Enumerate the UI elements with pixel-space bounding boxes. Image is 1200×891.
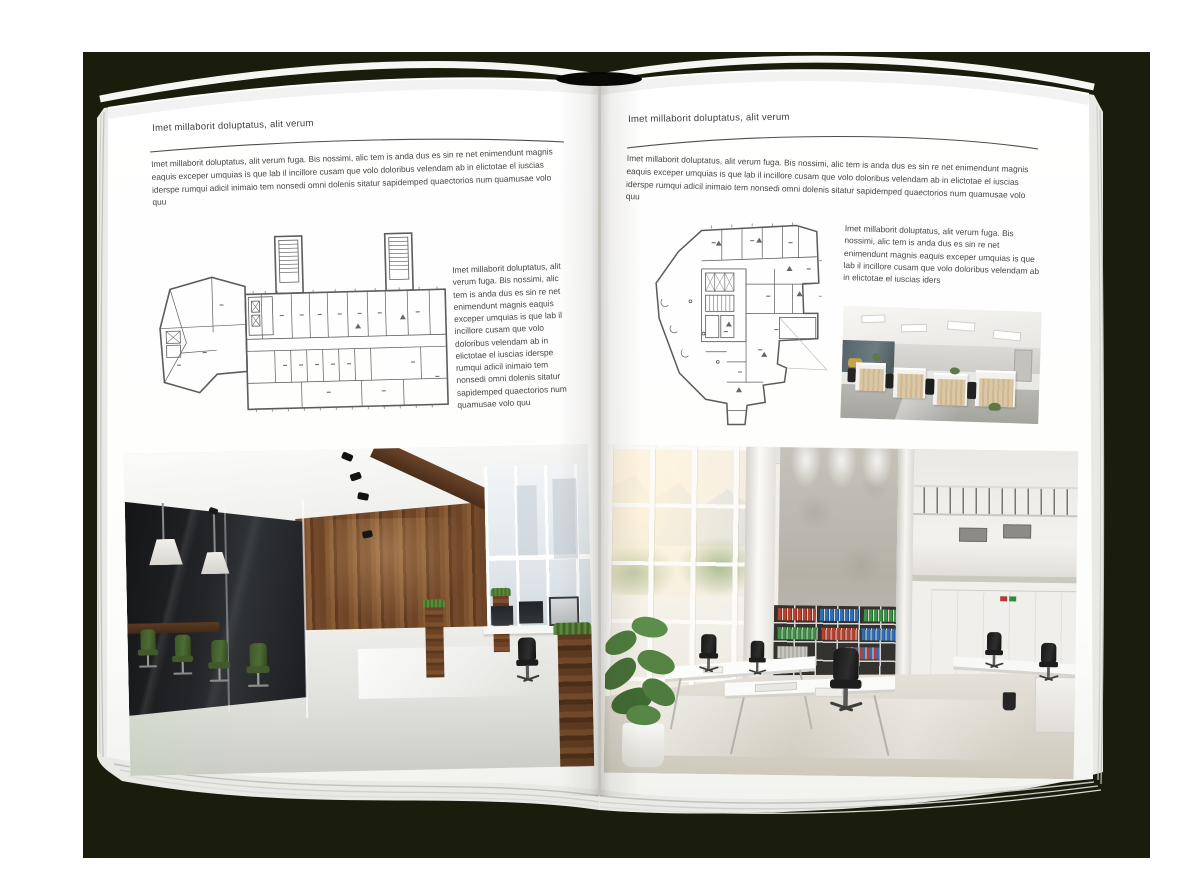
exit-sign-green [1009,596,1016,601]
green-chair [244,643,275,694]
grass-tuft [553,622,591,635]
ceiling-light [901,324,927,333]
right-header-rule [625,128,1041,154]
office-chair-small [885,373,893,388]
photo-dark-loft-office [124,444,595,776]
green-chair [135,629,162,674]
ceiling-light [861,314,885,323]
plant [989,403,1001,411]
office-chair [983,632,1006,671]
office-chair-small [925,379,934,395]
desk-pedestal [1034,677,1078,734]
binders-red [822,628,858,641]
grass-tuft [423,599,445,607]
leaf [634,644,678,680]
office-chair [1037,643,1061,685]
photo-cubicle-office [840,306,1041,424]
monitor [519,601,543,623]
office-chair [514,637,542,686]
vent-grille [1003,524,1031,538]
cubicle-wood-front [937,379,966,406]
plant [950,367,960,374]
city-silhouette [552,478,578,558]
office-chair [697,634,721,676]
balustrade [897,485,1077,518]
office-chair-small [847,368,855,382]
vent-grille [959,528,987,542]
binders-green [778,627,818,640]
plant-pot [622,723,665,768]
left-page-side-text: Imet millaborit doluptatus, alit verum f… [452,259,580,411]
green-chair [169,634,197,681]
floor-plan-drawing-left [148,226,453,424]
magazine-mockup: Imet millaborit doluptatus, alit verum I… [0,0,1200,891]
binders-red [778,608,816,621]
door [1014,349,1033,382]
safety-sign-red [1000,596,1007,601]
photo-bright-office [604,445,1079,780]
grass-tuft [491,588,511,596]
cubicle-wood-front [859,368,884,391]
potted-plant [604,615,690,774]
waste-bin [1003,692,1016,710]
cubicle-wood-front [897,374,924,399]
office-chair [827,648,867,718]
wood-wall [295,501,494,643]
binders-blue [820,609,860,622]
monitor [491,606,513,625]
city-silhouette [516,485,537,555]
wood-planter-front [558,632,595,767]
office-chair [747,641,768,678]
office-chair-small [967,382,977,399]
right-page-header: Imet millaborit doluptatus, alit verum [628,112,790,125]
spine-top-shadow [556,72,642,86]
right-page-side-text: Imet millaborit doluptatus, alit verum f… [843,222,1041,289]
wood-planter [425,605,445,677]
green-chair [206,640,236,689]
floor-plan-drawing-right [645,220,837,428]
